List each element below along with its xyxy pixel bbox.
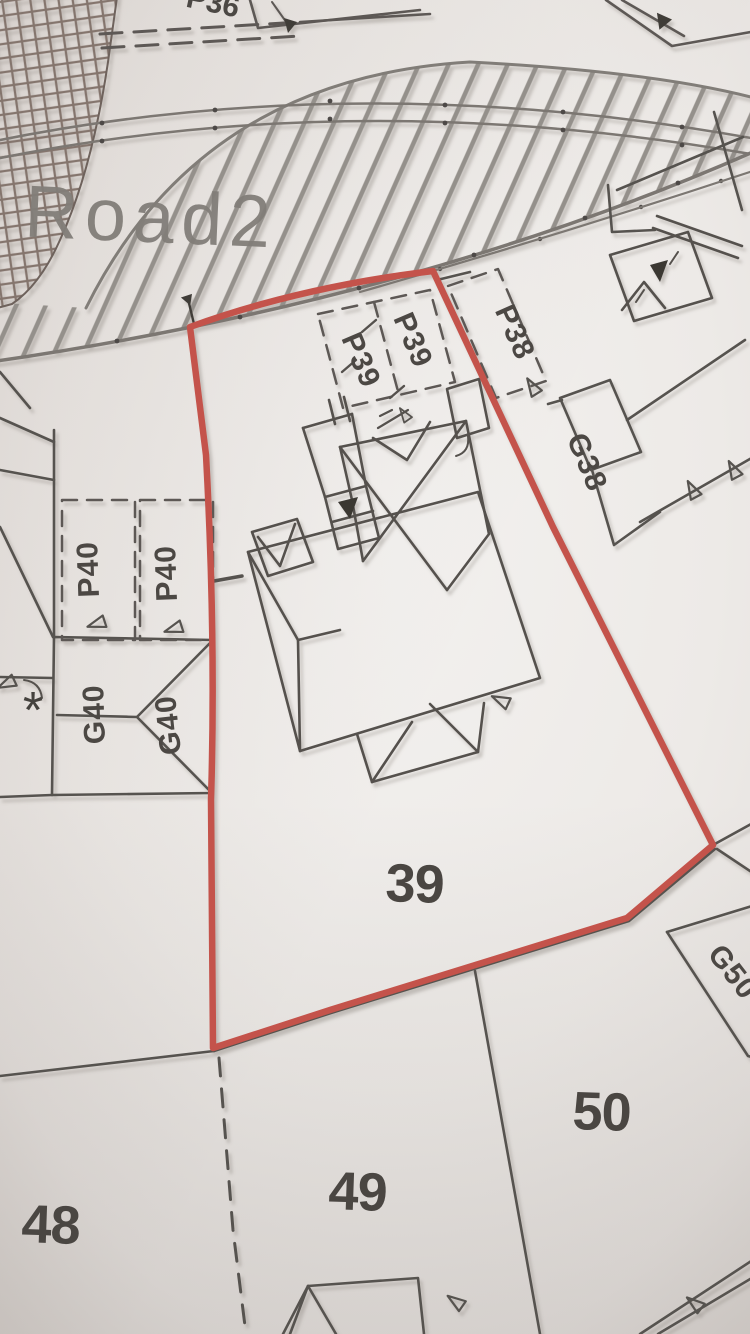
site-plan-photo: Road2 P36 39 48 49 50 P39 P39 P38 P40 P4… bbox=[0, 0, 750, 1334]
site-plan-drawing: Road2 P36 39 48 49 50 P39 P39 P38 P40 P4… bbox=[0, 0, 750, 1334]
